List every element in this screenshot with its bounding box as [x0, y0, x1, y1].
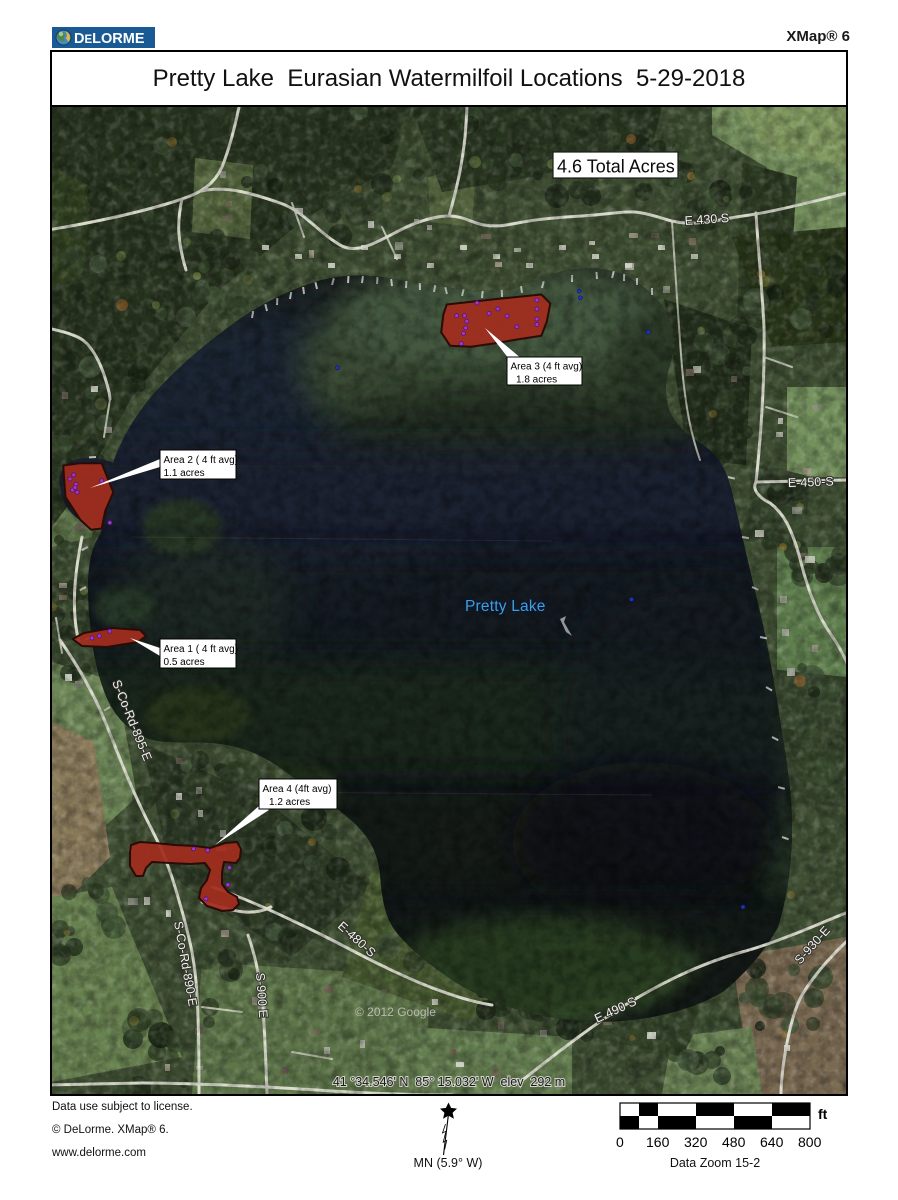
svg-text:1.8 acres: 1.8 acres — [516, 375, 557, 386]
svg-text:0.5 acres: 0.5 acres — [164, 657, 205, 668]
svg-text:Area 3 (4 ft avg): Area 3 (4 ft avg) — [511, 362, 583, 373]
svg-text:DELORME: DELORME — [74, 31, 145, 47]
svg-text:1.1 acres: 1.1 acres — [164, 468, 205, 479]
svg-text:Area 4 (4ft avg): Area 4 (4ft avg) — [263, 784, 332, 795]
svg-text:1.2 acres: 1.2 acres — [269, 797, 310, 808]
svg-text:Area 2 ( 4 ft avg): Area 2 ( 4 ft avg) — [164, 455, 238, 466]
svg-text:4.6 Total Acres: 4.6 Total Acres — [557, 157, 675, 177]
svg-text:© 2012 Google: © 2012 Google — [355, 1005, 436, 1019]
svg-text:Area 1 ( 4 ft avg): Area 1 ( 4 ft avg) — [164, 644, 238, 655]
svg-text:Pretty Lake: Pretty Lake — [465, 598, 546, 615]
svg-text:E-450-S: E-450-S — [788, 474, 834, 490]
svg-text:41 °34.546' N 85° 15.032' W: 41 °34.546' N 85° 15.032' W elev 292 m — [333, 1075, 565, 1089]
